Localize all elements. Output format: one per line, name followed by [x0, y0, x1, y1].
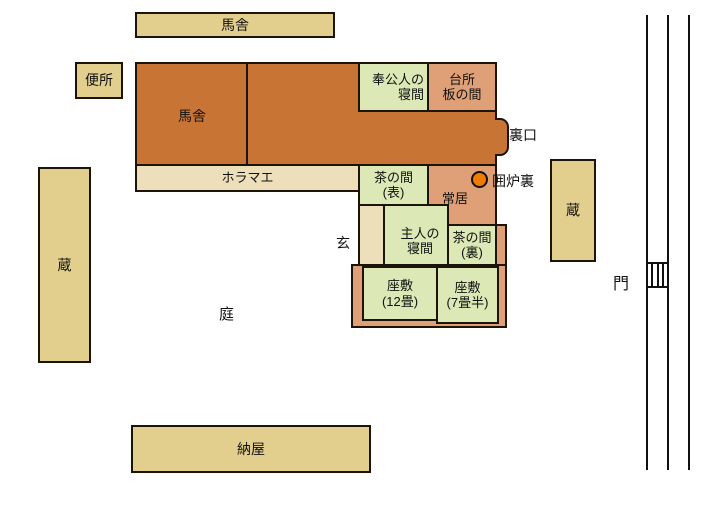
horamae-label: ホラマエ [221, 170, 273, 185]
hearth-icon [471, 171, 488, 188]
room-master-bedroom: 主人の 寝間 [383, 204, 449, 266]
stable-main-label: 馬舎 [137, 106, 247, 126]
room-barn: 納屋 [131, 425, 371, 473]
master-bedroom-line2: 寝間 [407, 241, 433, 256]
road-line-left [646, 15, 648, 470]
room-horamae: ホラマエ [135, 164, 360, 192]
toilet-label: 便所 [85, 72, 113, 89]
zashiki-7half-line2: (7畳半) [447, 295, 489, 310]
back-door-icon [495, 118, 509, 156]
master-bedroom-line1: 主人の [400, 226, 439, 241]
barn-label: 納屋 [237, 441, 265, 458]
back-door-label: 裏口 [509, 125, 537, 145]
road-line-middle [667, 15, 669, 470]
room-zashiki-12: 座敷 (12畳) [362, 266, 438, 321]
room-entrance-passage [358, 204, 385, 266]
room-storehouse-left: 蔵 [38, 167, 91, 363]
room-kitchen: 台所 板の間 [427, 62, 497, 112]
kitchen-line2: 板の間 [442, 87, 481, 102]
stable-annex-label: 馬舎 [221, 17, 249, 34]
road-line-right [688, 15, 690, 470]
gate-icon [646, 262, 669, 288]
zashiki-12-line1: 座敷 [387, 278, 413, 293]
tea-back-line1: 茶の間 [452, 230, 491, 245]
entrance-genkan-label: 玄 [336, 233, 350, 253]
storehouse-right-label: 蔵 [566, 202, 580, 219]
hearth-label: 囲炉裏 [492, 171, 534, 191]
tea-front-line1: 茶の間 [374, 170, 413, 185]
servants-room-line1: 奉公人の [372, 72, 424, 87]
kitchen-line1: 台所 [449, 72, 475, 87]
room-toilet: 便所 [75, 62, 123, 99]
room-stable-annex: 馬舎 [135, 12, 335, 38]
veranda-right-strip [495, 224, 507, 268]
servants-room-line2: 寝間 [398, 87, 424, 102]
room-servants-bedroom: 奉公人の 寝間 [358, 62, 429, 112]
tea-back-line2: (裏) [461, 245, 483, 260]
garden-label: 庭 [219, 303, 234, 324]
room-zashiki-7half: 座敷 (7畳半) [436, 266, 499, 324]
storehouse-left-label: 蔵 [58, 257, 72, 274]
magariya-floor-plan: 門 馬舎 便所 蔵 蔵 納屋 馬舎 奉公人の 寝間 台所 板の間 裏口 ホラマエ… [0, 0, 724, 512]
room-storehouse-right: 蔵 [550, 159, 596, 262]
zashiki-12-line2: (12畳) [382, 294, 418, 309]
gate-label: 門 [613, 270, 629, 294]
room-tea-back: 茶の間 (裏) [447, 224, 497, 266]
zashiki-7half-line1: 座敷 [454, 280, 480, 295]
tea-front-line2: (表) [383, 185, 405, 200]
room-tea-front: 茶の間 (表) [358, 164, 429, 206]
